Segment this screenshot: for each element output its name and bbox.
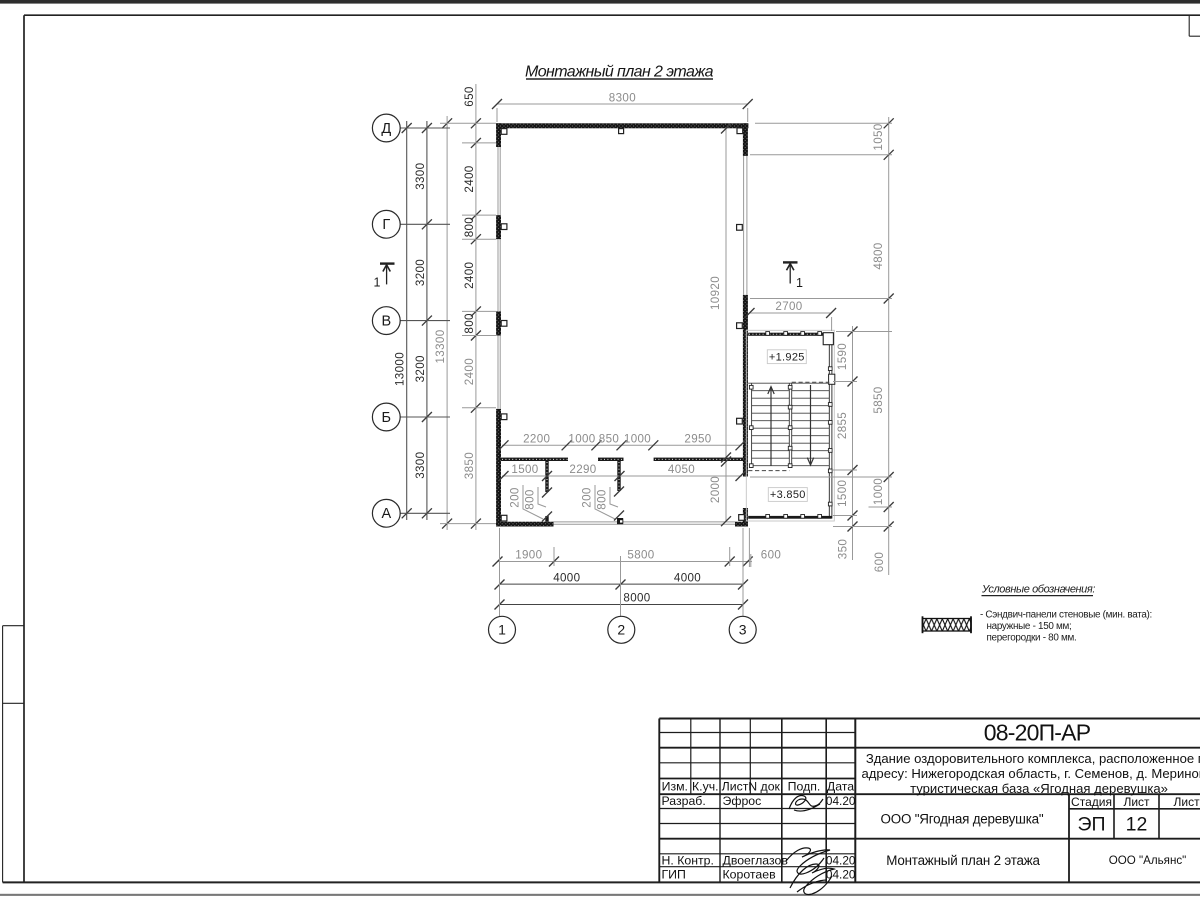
svg-text:1: 1	[374, 276, 381, 290]
svg-text:2855: 2855	[836, 412, 849, 439]
svg-text:1: 1	[796, 276, 803, 290]
svg-text:3200: 3200	[414, 259, 427, 286]
svg-text:650: 650	[463, 86, 476, 106]
svg-text:Монтажный план 2 этажа: Монтажный план 2 этажа	[886, 853, 1040, 868]
svg-text:5850: 5850	[872, 386, 885, 413]
svg-text:1000: 1000	[624, 432, 651, 445]
svg-text:наружные - 150 мм;: наружные - 150 мм;	[987, 621, 1072, 632]
svg-text:Н. Контр.: Н. Контр.	[662, 853, 714, 867]
svg-text:Д: Д	[381, 121, 391, 137]
svg-text:Изм.: Изм.	[662, 780, 688, 794]
svg-text:8300: 8300	[609, 92, 636, 105]
svg-text:2700: 2700	[775, 300, 802, 313]
svg-text:13300: 13300	[434, 330, 447, 364]
svg-text:перегородки - 80 мм.: перегородки - 80 мм.	[987, 633, 1077, 644]
svg-text:08-20П-АР: 08-20П-АР	[984, 720, 1091, 746]
svg-text:4050: 4050	[668, 463, 695, 476]
svg-text:800: 800	[463, 217, 476, 237]
svg-text:8000: 8000	[623, 592, 650, 605]
svg-text:адресу: Нижегородская область,: адресу: Нижегородская область, г. Семено…	[862, 766, 1200, 781]
svg-text:2400: 2400	[463, 165, 476, 192]
svg-text:К.уч.: К.уч.	[692, 780, 719, 794]
svg-text:1: 1	[498, 622, 506, 638]
svg-text:800: 800	[463, 313, 476, 333]
svg-text:Условные обозначения:: Условные обозначения:	[981, 584, 1095, 596]
svg-text:Монтажный план 2 этажа: Монтажный план 2 этажа	[525, 64, 714, 81]
svg-text:- Сэндвич-панели стеновые (мин: - Сэндвич-панели стеновые (мин. вата):	[980, 610, 1152, 621]
svg-text:800: 800	[524, 489, 537, 509]
svg-text:1900: 1900	[515, 549, 542, 562]
svg-text:Двоеглазов: Двоеглазов	[723, 853, 788, 867]
svg-text:1500: 1500	[836, 480, 849, 507]
svg-text:Г: Г	[382, 217, 390, 233]
svg-text:2200: 2200	[523, 432, 550, 445]
svg-text:ЭП: ЭП	[1077, 814, 1105, 836]
svg-text:Эфрос: Эфрос	[723, 794, 762, 808]
svg-text:2400: 2400	[463, 262, 476, 289]
svg-text:1500: 1500	[511, 463, 538, 476]
svg-text:+3.850: +3.850	[770, 489, 806, 501]
svg-text:Лист: Лист	[722, 780, 749, 794]
svg-text:А: А	[381, 506, 391, 522]
svg-text:+1.925: +1.925	[769, 351, 805, 363]
svg-text:туристическая база «Ягодная де: туристическая база «Ягодная деревушка»	[910, 781, 1168, 796]
svg-text:600: 600	[873, 552, 886, 572]
svg-text:04.20: 04.20	[826, 794, 856, 808]
svg-text:12: 12	[1126, 814, 1148, 836]
svg-text:2400: 2400	[463, 358, 476, 385]
svg-text:Коротаев: Коротаев	[723, 868, 776, 882]
svg-text:4000: 4000	[553, 571, 580, 584]
svg-text:4000: 4000	[674, 571, 701, 584]
svg-text:4800: 4800	[872, 242, 885, 269]
svg-text:Стадия: Стадия	[1071, 795, 1112, 809]
svg-text:200: 200	[581, 487, 594, 507]
svg-text:ООО "Альянс": ООО "Альянс"	[1109, 854, 1187, 867]
svg-text:Подп.: Подп.	[788, 780, 821, 794]
svg-text:200: 200	[509, 487, 522, 507]
svg-text:В: В	[381, 313, 391, 329]
svg-text:600: 600	[761, 549, 781, 562]
svg-text:3200: 3200	[414, 355, 427, 382]
svg-text:Дата: Дата	[827, 780, 854, 794]
svg-text:2: 2	[617, 622, 625, 638]
svg-text:3: 3	[739, 622, 747, 638]
svg-text:350: 350	[836, 539, 849, 559]
svg-text:1050: 1050	[872, 123, 885, 150]
svg-text:04.20: 04.20	[826, 853, 856, 867]
svg-text:13000: 13000	[394, 352, 407, 386]
svg-text:2290: 2290	[569, 463, 596, 476]
svg-text:850: 850	[599, 432, 619, 445]
svg-text:Разраб.: Разраб.	[662, 794, 706, 808]
svg-text:Здание оздоровительного компле: Здание оздоровительного комплекса, распо…	[866, 751, 1200, 766]
svg-text:5800: 5800	[627, 549, 654, 562]
svg-text:2000: 2000	[709, 476, 722, 503]
svg-text:10920: 10920	[709, 276, 722, 310]
svg-text:N док.: N док.	[748, 780, 783, 794]
svg-text:ГИП: ГИП	[662, 868, 686, 882]
svg-text:800: 800	[596, 489, 609, 509]
svg-text:2950: 2950	[684, 432, 711, 445]
svg-text:Лист: Лист	[1123, 795, 1150, 809]
svg-text:1000: 1000	[872, 478, 885, 505]
svg-text:1000: 1000	[568, 432, 595, 445]
svg-text:Листов: Листов	[1174, 795, 1200, 809]
svg-text:3300: 3300	[414, 163, 427, 190]
svg-text:3850: 3850	[463, 452, 476, 479]
svg-text:3300: 3300	[414, 452, 427, 479]
svg-text:Б: Б	[382, 410, 392, 426]
svg-text:ООО "Ягодная деревушка": ООО "Ягодная деревушка"	[881, 812, 1044, 827]
svg-text:1590: 1590	[836, 343, 849, 370]
